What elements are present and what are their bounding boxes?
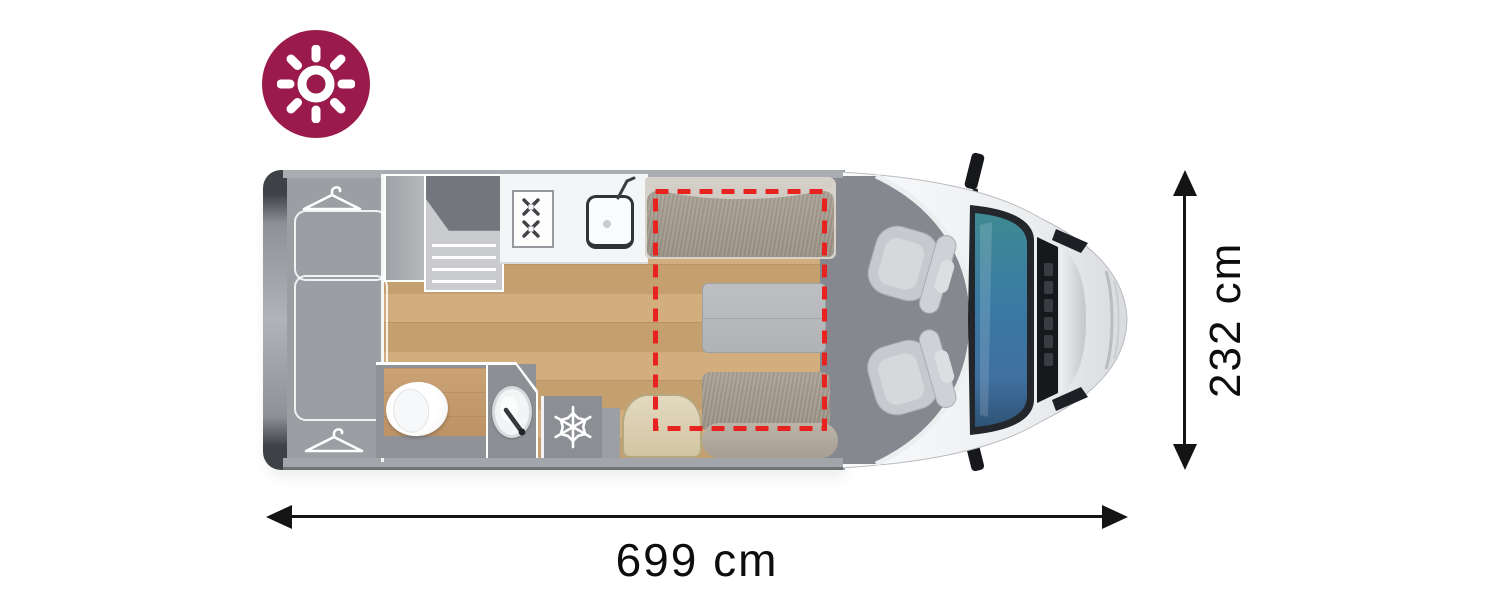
sun-badge: [262, 30, 370, 138]
drop-down-bed-outline: [650, 186, 830, 434]
floorplan-diagram: 699 cm 232 cm: [0, 0, 1500, 600]
cab-and-front: [818, 145, 1150, 491]
faucet-icon: [498, 402, 532, 442]
bathroom-wall: [376, 362, 494, 365]
rear-bed-outline-upper: [294, 210, 388, 281]
kitchen-sink-icon: [586, 195, 634, 249]
length-dimension-arrow: [266, 504, 1128, 530]
width-dimension-arrow: [1172, 170, 1198, 470]
length-arrow-line: [284, 515, 1110, 518]
van-wall-bottom: [283, 458, 843, 470]
width-arrow-line: [1183, 188, 1186, 452]
arrow-head-bottom: [1173, 444, 1197, 470]
sun-icon: [277, 45, 355, 123]
two-burner-stove-icon: [512, 190, 554, 248]
step-unit-slope: [426, 176, 502, 231]
hanger-icon: [299, 182, 365, 214]
arrow-head-left: [266, 505, 292, 529]
sink-drain: [603, 220, 611, 228]
arrow-head-top: [1173, 170, 1197, 196]
arrow-head-right: [1102, 505, 1128, 529]
snowflake-icon: [550, 404, 596, 450]
van-rear-bumper: [263, 170, 287, 470]
wardrobe-cabinet: [384, 174, 428, 282]
step-unit: [424, 174, 504, 292]
hanger-icon: [301, 424, 367, 456]
toilet-lid: [391, 387, 432, 435]
rear-bed-outline-lower: [294, 275, 388, 421]
length-dimension-label: 699 cm: [266, 533, 1128, 587]
step-treads: [432, 235, 496, 284]
fridge: [541, 396, 602, 458]
faucet-icon: [608, 170, 642, 202]
width-dimension-label: 232 cm: [1196, 170, 1256, 470]
